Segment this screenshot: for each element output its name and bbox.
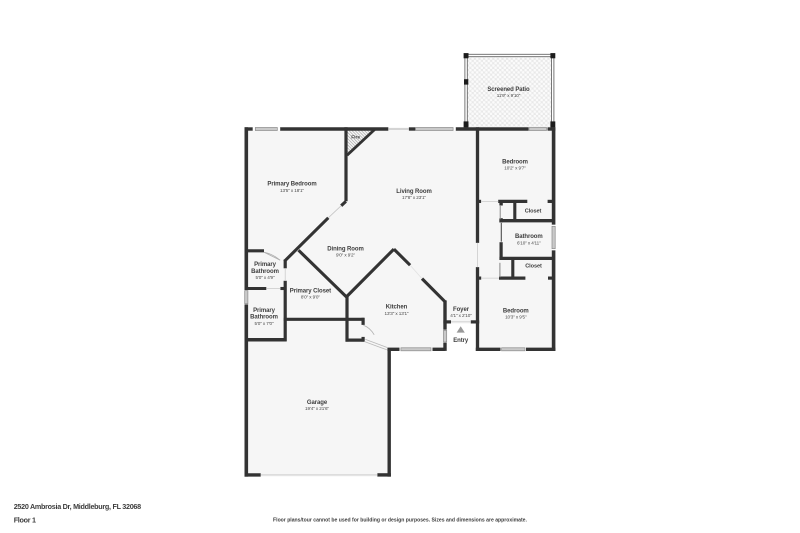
svg-text:Fire: Fire (351, 135, 360, 141)
svg-text:5'0" x 7'0": 5'0" x 7'0" (255, 321, 274, 326)
svg-text:Bedroom: Bedroom (502, 159, 528, 165)
svg-text:Dining Room: Dining Room (327, 246, 363, 252)
svg-text:6'10" x 4'11": 6'10" x 4'11" (517, 241, 541, 246)
svg-text:Primary Bedroom: Primary Bedroom (267, 181, 316, 187)
svg-text:9'0" x 9'2": 9'0" x 9'2" (336, 253, 355, 258)
svg-text:Primary: Primary (254, 262, 277, 268)
svg-text:8'0" x 9'0": 8'0" x 9'0" (301, 295, 320, 300)
svg-text:4'1" x 2'10": 4'1" x 2'10" (450, 313, 472, 318)
svg-text:13'3" x 13'1": 13'3" x 13'1" (385, 311, 409, 316)
svg-text:Kitchen: Kitchen (386, 304, 408, 310)
svg-text:Primary Closet: Primary Closet (290, 288, 331, 294)
svg-text:10'2" x 9'7": 10'2" x 9'7" (504, 166, 526, 171)
svg-text:10'3" x 9'5": 10'3" x 9'5" (505, 314, 527, 319)
svg-text:Closet: Closet (525, 264, 542, 270)
svg-text:Bathroom: Bathroom (251, 269, 279, 275)
svg-text:Floor 1: Floor 1 (14, 515, 36, 524)
svg-text:Closet: Closet (525, 208, 542, 214)
svg-text:11'9" x 9'10": 11'9" x 9'10" (497, 93, 521, 98)
svg-text:17'8" x 23'1": 17'8" x 23'1" (402, 195, 426, 200)
svg-text:13'5" x 18'1": 13'5" x 18'1" (280, 188, 304, 193)
svg-text:Bathroom: Bathroom (515, 234, 543, 240)
svg-text:Bathroom: Bathroom (250, 315, 278, 321)
svg-text:19'4" x 21'6": 19'4" x 21'6" (305, 406, 329, 411)
svg-text:2520 Ambrosia Dr, Middleburg,: 2520 Ambrosia Dr, Middleburg, FL 32068 (14, 502, 141, 511)
svg-text:Floor plans/tour cannot be use: Floor plans/tour cannot be used for buil… (273, 518, 527, 524)
svg-text:Entry: Entry (453, 338, 469, 344)
svg-text:5'0" x 4'9": 5'0" x 4'9" (256, 275, 275, 280)
svg-text:Primary: Primary (253, 308, 276, 314)
